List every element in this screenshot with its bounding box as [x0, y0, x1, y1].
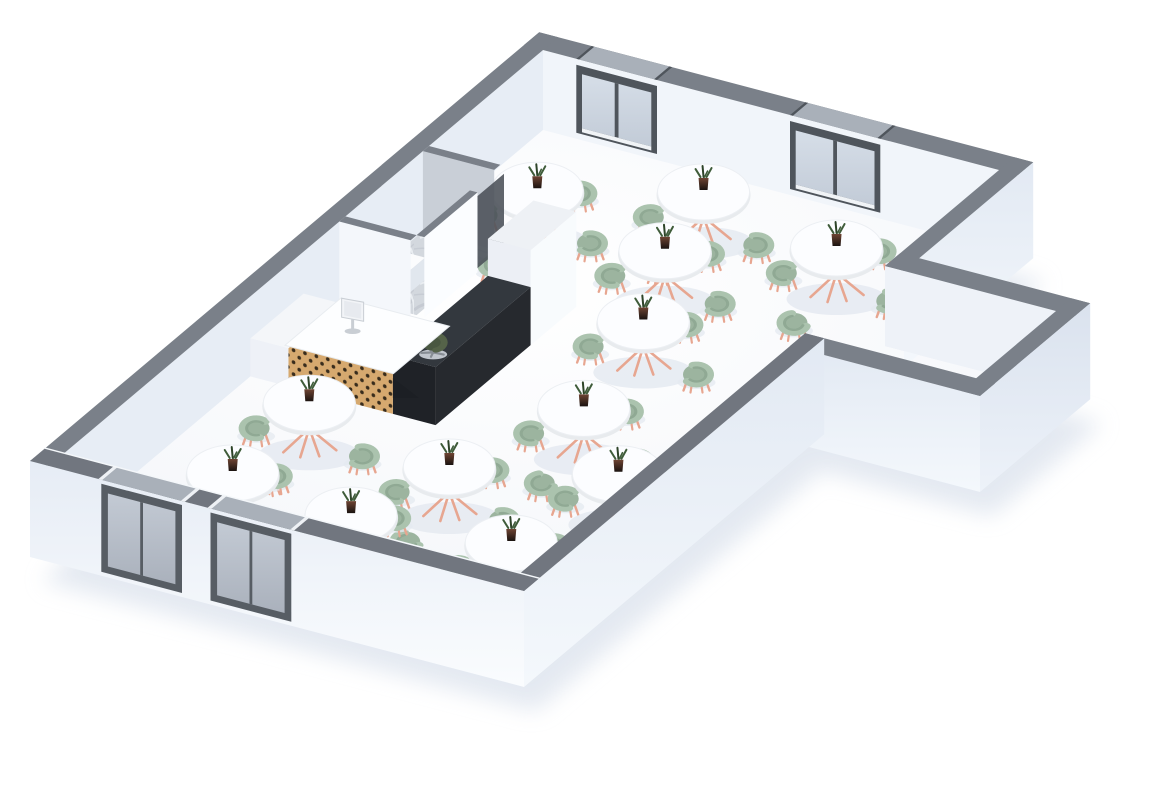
plant-leaf: [583, 382, 584, 393]
chair-body: [517, 423, 544, 443]
chair-body: [349, 446, 376, 466]
plant-pot: [346, 501, 356, 513]
dining-chair: [764, 263, 802, 291]
plant-pot: [444, 453, 454, 465]
dining-chair: [593, 266, 631, 294]
plant-pot: [613, 460, 623, 472]
office-chair-base-leg: [421, 352, 433, 353]
plant-leaf: [448, 441, 449, 452]
dining-chair: [237, 418, 275, 446]
plant-leaf: [642, 296, 643, 307]
window-mullion: [615, 83, 619, 138]
plant-pot: [660, 237, 670, 249]
plant-pot: [638, 308, 648, 320]
dining-chair: [512, 423, 550, 451]
plant-pot: [304, 389, 314, 401]
plant-leaf: [510, 517, 511, 528]
dining-table: [787, 220, 887, 315]
plant-pot: [506, 529, 516, 541]
plant-leaf: [232, 447, 233, 458]
plant-leaf: [617, 448, 618, 459]
dining-table: [593, 294, 693, 389]
chair-body: [683, 365, 710, 385]
chair-body: [781, 313, 808, 333]
chair-body: [705, 294, 732, 314]
plant-pot: [228, 459, 238, 471]
window-mullion: [833, 140, 837, 195]
dining-chair: [546, 489, 584, 517]
plant-pot: [579, 394, 589, 406]
door-stile: [140, 502, 143, 576]
plant-leaf: [536, 164, 537, 175]
chair-body: [743, 235, 770, 255]
chair-body: [243, 418, 270, 438]
plant-pot: [832, 234, 842, 246]
chair-body: [552, 489, 579, 509]
chair-body: [577, 337, 604, 357]
door-stile: [250, 531, 253, 605]
plant-leaf: [703, 166, 704, 177]
chair-body: [598, 266, 625, 286]
floorplan-render: [0, 0, 1170, 798]
chair-body: [528, 473, 555, 493]
plant-leaf: [836, 222, 837, 233]
plant-leaf: [664, 225, 665, 236]
floorplan-stage: [0, 0, 1170, 798]
plant-leaf: [350, 489, 351, 500]
plant-pot: [699, 178, 709, 190]
chair-body: [577, 233, 604, 253]
dining-chair: [571, 337, 609, 365]
dining-table: [259, 375, 359, 470]
plant-leaf: [308, 377, 309, 388]
plant-pot: [532, 176, 542, 188]
chair-body: [770, 263, 797, 283]
